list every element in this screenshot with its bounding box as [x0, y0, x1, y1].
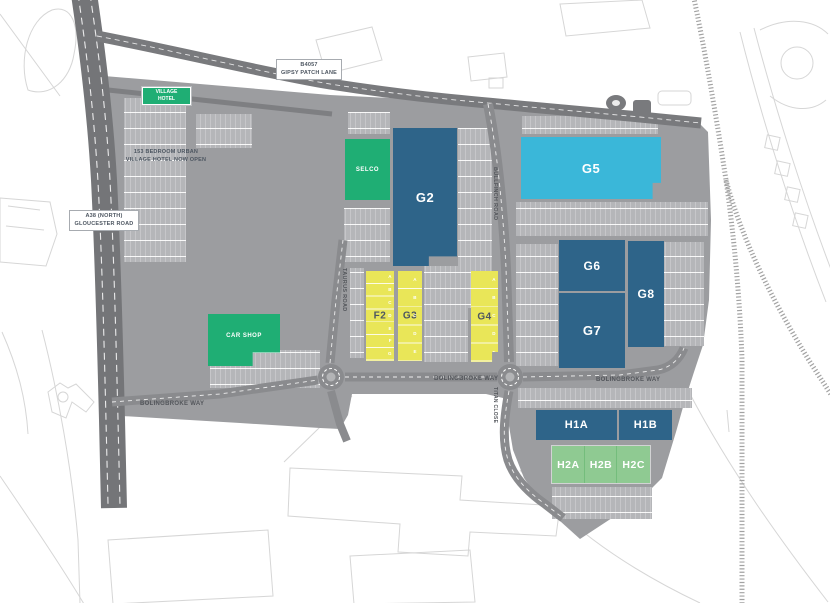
village-hotel-label[interactable]: VILLAGE HOTEL — [142, 87, 191, 105]
building-g7-label: G7 — [583, 323, 601, 338]
building-g4[interactable]: G4 AB CD E — [471, 271, 498, 362]
bolingbroke-way-label-centre: BOLINGBROKE WAY — [434, 376, 498, 382]
building-h2c-label: H2C — [617, 459, 650, 471]
building-g2-label: G2 — [416, 190, 434, 205]
building-g4-units: AB CD E — [471, 271, 498, 362]
building-selco[interactable]: SELCO — [345, 139, 390, 200]
building-f2-units: AB CD EF G — [366, 271, 394, 361]
building-g8-label: G8 — [637, 287, 654, 301]
hotel-note: 153 BEDROOM URBAN VILLAGE HOTEL NOW OPEN — [120, 148, 212, 165]
building-g6[interactable]: G6 — [559, 240, 625, 291]
building-g6-label: G6 — [583, 259, 600, 273]
bolingbroke-way-label-west: BOLINGBROKE WAY — [140, 401, 204, 407]
taurus-road-label: TAURUS ROAD — [341, 268, 347, 332]
building-g7[interactable]: G7 — [559, 293, 625, 368]
bullfinch-road-label: BULLFINCH ROAD — [492, 167, 498, 247]
building-h2[interactable]: H2A H2B H2C — [552, 446, 650, 483]
a38-gloucester-road-label: A38 (NORTH) GLOUCESTER ROAD — [69, 210, 139, 231]
bolingbroke-way-label-east: BOLINGBROKE WAY — [596, 377, 660, 383]
building-g3[interactable]: G3 AB CD E — [398, 271, 422, 361]
railway-line — [693, 0, 830, 603]
building-car-shop-label: CAR SHOP — [226, 333, 262, 339]
building-h1a-label: H1A — [565, 419, 589, 431]
building-h1a[interactable]: H1A — [536, 410, 617, 440]
building-h2a-label: H2A — [552, 459, 585, 471]
building-selco-label: SELCO — [356, 167, 379, 173]
titan-close-label: TITAN CLOSE — [492, 387, 498, 427]
building-g5-label: G5 — [582, 161, 600, 176]
building-h2b-label: H2B — [585, 459, 618, 471]
site-masterplan-map: SELCO G2 G5 G6 G7 G8 F2 AB CD EF G G3 AB… — [0, 0, 830, 603]
building-f2[interactable]: F2 AB CD EF G — [366, 271, 394, 361]
b4057-gipsy-patch-lane-label: B4057 GIPSY PATCH LANE — [276, 59, 342, 80]
building-g5[interactable]: G5 — [521, 137, 661, 199]
building-h1b[interactable]: H1B — [619, 410, 672, 440]
building-g2[interactable]: G2 — [393, 128, 457, 266]
building-g8[interactable]: G8 — [628, 241, 664, 347]
building-g3-units: AB CD E — [398, 271, 422, 361]
building-h1b-label: H1B — [634, 419, 658, 431]
